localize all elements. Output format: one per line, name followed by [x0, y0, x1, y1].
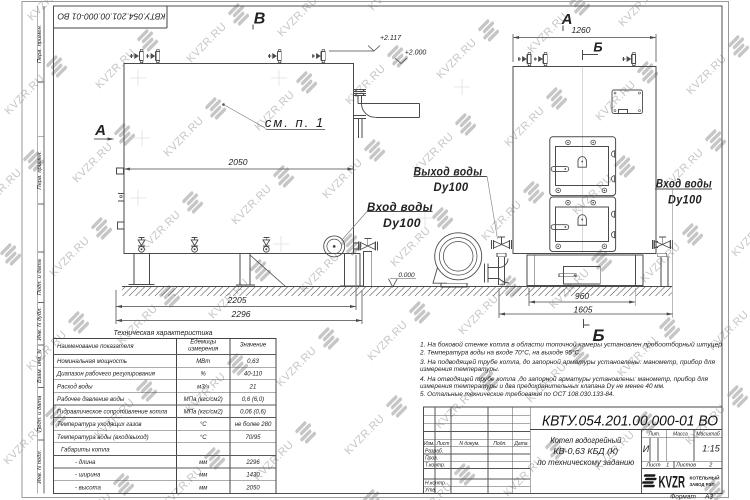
svg-text:KVZR.RU: KVZR.RU [0, 167, 24, 212]
svg-text:Подп. и дата: Подп. и дата [37, 395, 43, 432]
svg-text:Взам. инв. N: Взам. инв. N [37, 349, 43, 384]
svg-text:70/95: 70/95 [245, 435, 261, 441]
svg-text:2050: 2050 [245, 485, 260, 491]
svg-text:А3: А3 [704, 494, 713, 500]
svg-text:Номинальная мощность: Номинальная мощность [57, 359, 127, 365]
svg-text:KVZR.RU: KVZR.RU [161, 465, 206, 500]
svg-text:МПа (кгс/см2): МПа (кгс/см2) [184, 410, 223, 416]
svg-text:Наименование показателя: Наименование показателя [57, 344, 134, 350]
svg-text:1430: 1430 [246, 473, 260, 479]
svg-text:Dy100: Dy100 [668, 195, 702, 207]
svg-text:Формат: Формат [670, 494, 696, 500]
svg-text:0,63: 0,63 [247, 359, 259, 365]
svg-text:измерения температуры и два пр: измерения температуры и два предохраните… [420, 382, 665, 390]
svg-text:2205: 2205 [227, 295, 247, 305]
svg-text:- ширина: - ширина [75, 473, 101, 479]
svg-text:KVZR.RU: KVZR.RU [366, 319, 411, 364]
svg-text:Вход воды: Вход воды [367, 202, 433, 214]
svg-text:N докум.: N докум. [459, 441, 479, 447]
svg-text:Разраб.: Разраб. [425, 448, 443, 454]
svg-text:мм: мм [199, 460, 207, 466]
svg-text:Температура воды (вход/выход): Температура воды (вход/выход) [57, 435, 149, 441]
svg-text:960: 960 [575, 291, 589, 301]
svg-text:4. На отводящей трубе котла ,: 4. На отводящей трубе котла ,до запорной… [420, 375, 709, 383]
svg-text:И: И [643, 444, 650, 454]
svg-text:+2.117: +2.117 [380, 35, 402, 42]
svg-text:1:15: 1:15 [702, 444, 721, 454]
svg-text:KVZR.RU: KVZR.RU [275, 345, 320, 390]
svg-text:KVZR.RU: KVZR.RU [730, 215, 750, 260]
svg-text:Пров.: Пров. [425, 456, 438, 462]
svg-text:Б: Б [593, 40, 602, 55]
svg-text:Масса: Масса [673, 432, 688, 438]
svg-text:0,06 (0,6): 0,06 (0,6) [240, 410, 266, 416]
svg-text:измерения: измерения [188, 347, 219, 353]
svg-text:40-110: 40-110 [244, 372, 263, 378]
svg-text:0,6 (6,0): 0,6 (6,0) [242, 397, 264, 403]
svg-text:см. п. 1: см. п. 1 [265, 115, 325, 130]
svg-text:KVZR.RU: KVZR.RU [184, 371, 229, 416]
svg-text:Котел водогрейный: Котел водогрейный [550, 435, 621, 445]
svg-text:А: А [94, 122, 106, 139]
svg-text:KVZR.RU: KVZR.RU [0, 261, 1, 306]
svg-text:KVZR.RU: KVZR.RU [344, 63, 389, 108]
svg-text:Гидравлическое сопротивление к: Гидравлическое сопротивление котла [57, 410, 168, 416]
svg-text:KVZR.RU: KVZR.RU [48, 235, 93, 280]
svg-text:°С: °С [200, 422, 207, 428]
svg-text:KVZR.RU: KVZR.RU [70, 491, 115, 500]
svg-text:Инв. N подл.: Инв. N подл. [37, 450, 43, 484]
svg-text:Дата: Дата [513, 441, 527, 447]
svg-text:не более 280: не более 280 [235, 422, 272, 428]
svg-text:KVZR.RU: KVZR.RU [321, 157, 366, 202]
svg-text:KVZR.RU: KVZR.RU [617, 0, 662, 29]
svg-text:В: В [254, 11, 266, 28]
svg-text:Диапазон рабочего регулировани: Диапазон рабочего регулирования [56, 372, 156, 378]
svg-text:KVZR.RU: KVZR.RU [3, 73, 48, 118]
svg-text:МВт: МВт [196, 359, 210, 365]
svg-text:м3/ч: м3/ч [197, 384, 209, 390]
svg-text:Перв. примен.: Перв. примен. [37, 25, 43, 64]
svg-text:KVZR.RU: KVZR.RU [343, 413, 388, 458]
svg-text:5. Остальные технические треб: 5. Остальные технические требования по О… [420, 390, 614, 398]
svg-text:KVZR.RU: KVZR.RU [230, 183, 275, 228]
svg-text:KVZR.RU: KVZR.RU [503, 105, 548, 150]
svg-text:Dy100: Dy100 [434, 182, 469, 194]
svg-text:Инв. N дубл.: Инв. N дубл. [37, 307, 43, 341]
svg-text:KVZR.RU: KVZR.RU [594, 79, 639, 124]
svg-text:KVZR.RU: KVZR.RU [435, 37, 480, 82]
svg-text:мм: мм [199, 473, 207, 479]
svg-text:2296: 2296 [245, 460, 260, 466]
svg-text:- длина: - длина [75, 460, 96, 466]
svg-text:2: 2 [708, 463, 712, 469]
svg-text:мм: мм [199, 485, 207, 491]
svg-text:КВТУ.054.201.00.000-01 ВО: КВТУ.054.201.00.000-01 ВО [542, 414, 718, 430]
svg-text:КВ-0,63 КБД (К): КВ-0,63 КБД (К) [553, 446, 618, 456]
svg-text:1: 1 [666, 463, 669, 469]
svg-text:KVZR.RU: KVZR.RU [71, 141, 116, 186]
svg-text:Dy100: Dy100 [383, 218, 421, 230]
svg-text:Температура уходящих газов: Температура уходящих газов [57, 422, 142, 428]
svg-text:Листов: Листов [675, 463, 696, 469]
svg-text:KVZR.RU: KVZR.RU [457, 293, 502, 338]
svg-text:KVZR.RU: KVZR.RU [162, 115, 207, 160]
svg-text:KVZR.RU: KVZR.RU [389, 225, 434, 270]
svg-text:%: % [201, 372, 207, 378]
svg-text:KVZR.RU: KVZR.RU [25, 329, 70, 374]
svg-text:Н.контр.: Н.контр. [425, 480, 446, 486]
svg-text:3. На подводящей трубе котла,: 3. На подводящей трубе котла, до запорно… [420, 358, 716, 366]
svg-text:Лит.: Лит. [648, 432, 661, 438]
svg-text:по техническому заданию: по техническому заданию [537, 457, 635, 467]
svg-text:Габариты котла: Габариты котла [61, 447, 110, 453]
svg-text:21: 21 [249, 384, 257, 390]
svg-text:Расход воды: Расход воды [57, 384, 93, 390]
svg-text:KVZR.RU: KVZR.RU [367, 0, 412, 13]
svg-text:2050: 2050 [228, 157, 248, 167]
svg-text:КОТЕЛЬНЫЙ: КОТЕЛЬНЫЙ [690, 474, 721, 482]
svg-text:Подп. и дата: Подп. и дата [37, 258, 43, 295]
svg-text:ЗАВОД РЭП: ЗАВОД РЭП [690, 482, 715, 488]
svg-text:KVZR.RU: KVZR.RU [116, 303, 161, 348]
svg-text:Масштаб: Масштаб [696, 432, 720, 438]
svg-text:2296: 2296 [231, 309, 251, 319]
svg-text:Лист: Лист [645, 463, 661, 469]
svg-text:KVZR.RU: KVZR.RU [480, 199, 525, 244]
svg-text:МПа (кгс/см2): МПа (кгс/см2) [184, 397, 223, 403]
svg-text:Перв. примен.: Перв. примен. [37, 151, 43, 190]
svg-text:Техническая характеристика: Техническая характеристика [113, 330, 212, 337]
svg-text:КВТУ.054.201.00.000-01 ВО: КВТУ.054.201.00.000-01 ВО [57, 11, 165, 21]
svg-text:1260: 1260 [572, 25, 591, 35]
svg-text:Едемицы: Едемицы [190, 340, 216, 346]
svg-text:Лист: Лист [436, 441, 450, 447]
svg-text:- высота: - высота [75, 485, 101, 491]
svg-text:+2.000: +2.000 [405, 50, 427, 57]
svg-text:Утв.: Утв. [425, 488, 436, 494]
svg-text:измерения температуры.: измерения температуры. [420, 366, 500, 373]
svg-text:0.000: 0.000 [398, 272, 415, 279]
svg-text:Подп.: Подп. [493, 441, 506, 447]
svg-text:KVZR.RU: KVZR.RU [185, 21, 230, 66]
svg-text:KVZR.RU: KVZR.RU [139, 209, 184, 254]
svg-text:Т.контр.: Т.контр. [425, 463, 445, 469]
svg-text:KVZR.RU: KVZR.RU [94, 47, 139, 92]
svg-text:KVZR: KVZR [659, 474, 686, 492]
svg-text:1. На боковой стенке котла в: 1. На боковой стенке котла в области топ… [420, 341, 722, 349]
svg-text:2. Температура воды на входе: 2. Температура воды на входе 70°С, на вы… [419, 349, 581, 357]
svg-text:1605: 1605 [574, 305, 593, 315]
svg-text:Рабочее давление воды: Рабочее давление воды [57, 397, 125, 403]
svg-text:Значение: Значение [240, 343, 267, 349]
svg-text:Изм.: Изм. [424, 441, 435, 447]
svg-text:°С: °С [200, 435, 207, 441]
